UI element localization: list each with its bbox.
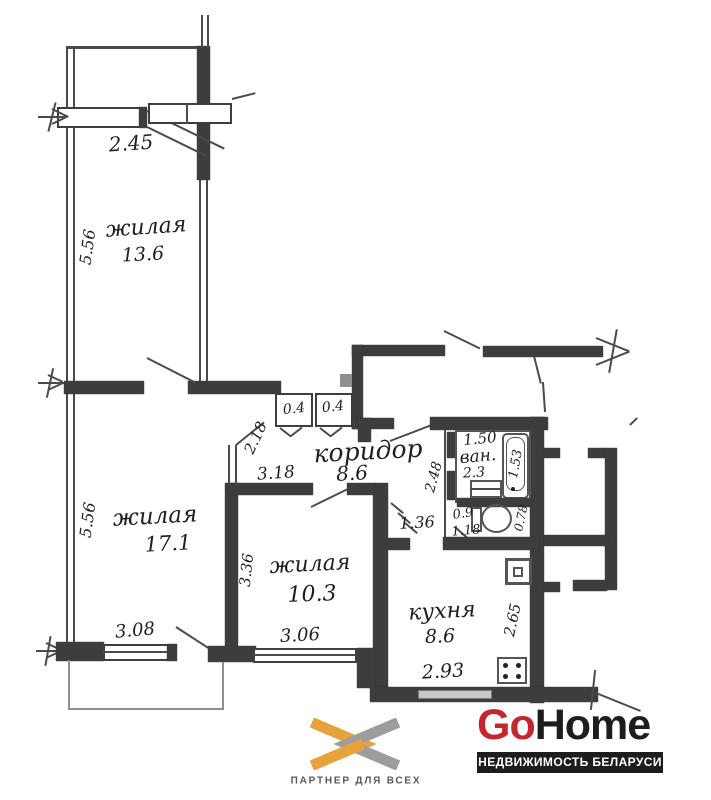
window-divider — [186, 103, 188, 124]
partner-x-mark — [306, 718, 404, 770]
wall-segment — [588, 448, 606, 458]
window-divider — [103, 651, 171, 653]
wall-segment — [66, 46, 207, 49]
stove-icon — [497, 657, 527, 684]
dim-label: 2.48 — [423, 460, 445, 494]
wall-segment — [340, 374, 352, 387]
wall-segment — [544, 535, 608, 546]
gohome-go: Go — [477, 701, 535, 749]
room-area: 10.3 — [287, 583, 337, 607]
window-symbol — [57, 107, 147, 128]
room-name: кухня — [408, 599, 476, 624]
window-symbol — [418, 690, 492, 699]
vent-shaft-inner — [513, 567, 523, 577]
partner-tagline: ПАРТНЕР ДЛЯ ВСЕХ — [291, 776, 422, 787]
room-name: жилая — [112, 503, 198, 530]
dim-label: 1.36 — [399, 514, 435, 532]
sink-line — [470, 488, 502, 490]
stove-burner — [503, 674, 508, 679]
wall-segment — [357, 648, 375, 688]
wall-segment — [207, 15, 209, 48]
dim-label: 2.65 — [502, 602, 524, 638]
closet-door-mark — [319, 427, 331, 437]
stove-burner — [503, 663, 508, 668]
tick-mark — [629, 417, 637, 425]
wall-segment — [66, 46, 68, 660]
door-swing-line — [311, 488, 349, 508]
dim-label: 3.08 — [114, 620, 155, 641]
dim-label: 5.56 — [78, 501, 99, 539]
room-name: жилая — [105, 214, 187, 242]
wall-segment — [73, 46, 75, 660]
bathtub-drain — [511, 487, 515, 491]
dim-label: 3.36 — [238, 553, 256, 588]
stove-burner — [516, 663, 521, 668]
wall-segment — [388, 538, 410, 550]
closet-door-mark — [290, 427, 302, 437]
dim-label: 0.78 — [512, 504, 529, 533]
door-swing-line — [147, 357, 196, 383]
wall-segment — [544, 448, 560, 458]
dim-label: 3.18 — [257, 464, 296, 484]
wall-segment — [373, 483, 388, 688]
room-name: жилая — [269, 552, 351, 578]
room-area: 17.1 — [144, 532, 192, 555]
wall-segment — [530, 417, 544, 703]
wall-segment — [167, 644, 177, 661]
tick-mark — [232, 92, 256, 100]
wall-segment — [64, 381, 144, 394]
dim-label: 2.45 — [108, 131, 154, 154]
entry-door-swing — [444, 330, 481, 349]
room-area: 2.3 — [463, 465, 486, 480]
wall-segment — [352, 345, 445, 356]
gohome-subtitle: НЕДВИЖИМОСТЬ БЕЛАРУСИ — [477, 752, 663, 773]
closet-door-mark — [279, 427, 291, 437]
entry-door-swing — [542, 382, 546, 412]
wall-segment — [544, 582, 560, 592]
balcony-outline — [68, 708, 224, 710]
dim-label: 2.18 — [242, 420, 270, 457]
floor-plan: 2.45 жилая 13.6 5.56 5.56 жилая 17.1 0.4… — [0, 0, 711, 800]
dim-label: 3.06 — [280, 626, 321, 646]
toilet — [481, 504, 512, 533]
wall-segment — [235, 445, 237, 485]
balcony-outline — [222, 662, 224, 710]
balcony-outline — [68, 660, 70, 710]
wall-segment — [228, 445, 230, 485]
wall-segment — [352, 345, 363, 429]
dim-label: 0.4 — [282, 401, 306, 417]
room-name: коридор — [313, 436, 423, 467]
room-area: 8.6 — [336, 462, 369, 484]
wall-segment — [225, 483, 238, 655]
dim-label: 0.9 — [452, 506, 474, 522]
wall-segment — [56, 642, 104, 661]
dim-label: 0.4 — [321, 399, 345, 415]
gohome-home: Home — [535, 701, 650, 749]
closet-door-mark — [330, 427, 342, 437]
wall-segment — [483, 346, 603, 357]
dim-label: 1.18 — [451, 523, 481, 538]
stove-burner — [516, 674, 521, 679]
wall-segment — [605, 448, 617, 590]
gohome-logo: GoHome — [477, 702, 650, 749]
window-divider — [253, 654, 357, 656]
wall-segment — [201, 15, 203, 48]
wall-segment — [444, 430, 446, 540]
room-area: 13.6 — [121, 244, 164, 265]
wall-segment — [206, 180, 208, 386]
wall-segment — [208, 646, 256, 662]
wall-segment — [139, 107, 147, 128]
dim-label: 5.56 — [78, 228, 99, 266]
room-area: 8.6 — [425, 627, 456, 647]
wall-segment — [188, 381, 281, 394]
dim-label: 2.93 — [421, 661, 464, 682]
wall-segment — [199, 180, 201, 386]
wall-segment — [228, 483, 313, 495]
window-symbol — [148, 103, 232, 124]
wall-segment — [573, 580, 607, 591]
